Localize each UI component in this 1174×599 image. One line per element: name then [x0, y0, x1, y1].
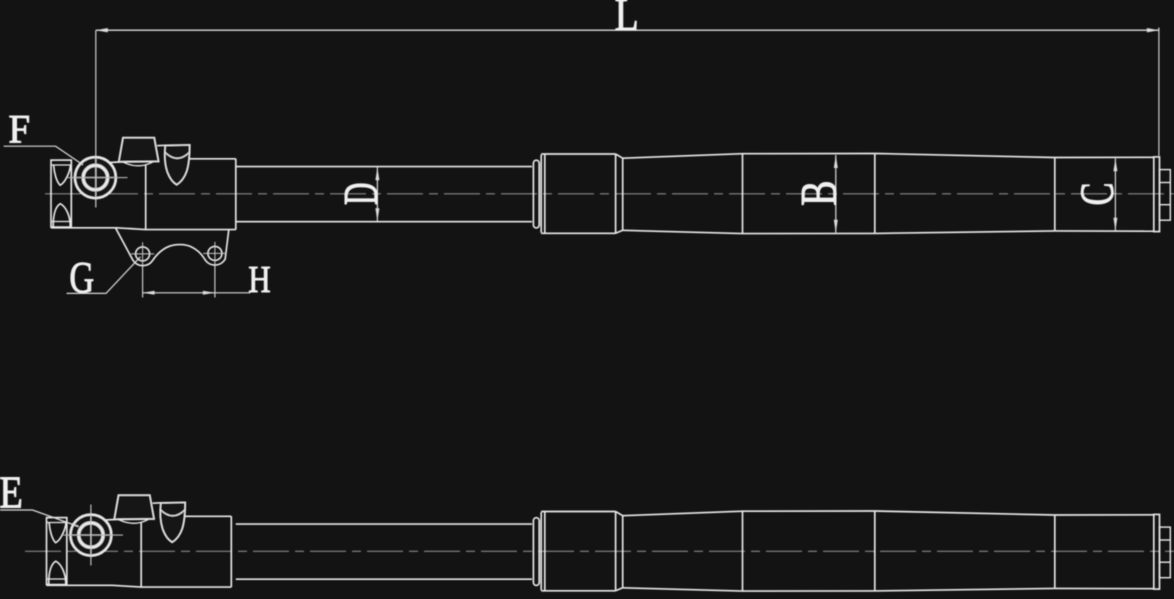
svg-text:C: C — [1072, 182, 1125, 205]
svg-text:F: F — [9, 107, 31, 152]
svg-text:D: D — [333, 182, 388, 205]
svg-text:B: B — [789, 181, 847, 206]
svg-text:G: G — [69, 253, 94, 302]
svg-text:H: H — [248, 259, 270, 301]
svg-text:L: L — [615, 0, 639, 41]
svg-text:E: E — [0, 467, 23, 518]
